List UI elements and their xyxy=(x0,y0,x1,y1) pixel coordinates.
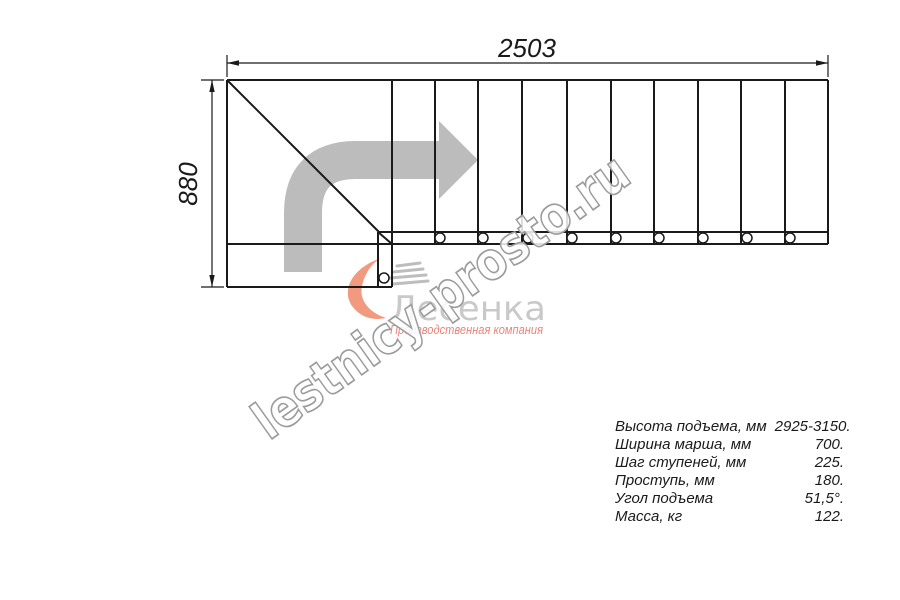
direction-arrow-icon xyxy=(303,121,478,272)
spec-value: 180. xyxy=(715,472,844,490)
spec-label: Ширина марша, мм xyxy=(615,436,751,454)
width-dimension-label: 2503 xyxy=(497,33,556,63)
dim-arrow-top xyxy=(209,80,214,92)
spec-value: 2925-3150. xyxy=(767,418,851,436)
dim-arrow-bottom xyxy=(209,275,214,287)
spec-label: Проступь, мм xyxy=(615,472,715,490)
spec-label: Шаг ступеней, мм xyxy=(615,454,746,472)
spec-label: Масса, кг xyxy=(615,508,682,526)
height-dimension: 880 xyxy=(173,80,224,287)
spec-row-angle: Угол подъема 51,5°. xyxy=(615,490,844,508)
spec-row-step-pitch: Шаг ступеней, мм 225. xyxy=(615,454,844,472)
width-dimension: 2503 xyxy=(227,33,828,77)
dim-arrow-right xyxy=(816,60,828,65)
spec-value: 51,5°. xyxy=(713,490,844,508)
spec-table: Высота подъема, мм 2925-3150. Ширина мар… xyxy=(615,418,844,526)
spec-label: Высота подъема, мм xyxy=(615,418,767,436)
spec-value: 225. xyxy=(746,454,844,472)
spec-row-tread: Проступь, мм 180. xyxy=(615,472,844,490)
stair-drawing-page: Лесенка Производственная компания xyxy=(0,0,900,600)
height-dimension-label: 880 xyxy=(173,162,203,206)
spec-row-march-width: Ширина марша, мм 700. xyxy=(615,436,844,454)
spec-row-height: Высота подъема, мм 2925-3150. xyxy=(615,418,844,436)
spec-value: 700. xyxy=(751,436,844,454)
spec-row-mass: Масса, кг 122. xyxy=(615,508,844,526)
spec-label: Угол подъема xyxy=(615,490,713,508)
dim-arrow-left xyxy=(227,60,239,65)
spec-value: 122. xyxy=(682,508,844,526)
